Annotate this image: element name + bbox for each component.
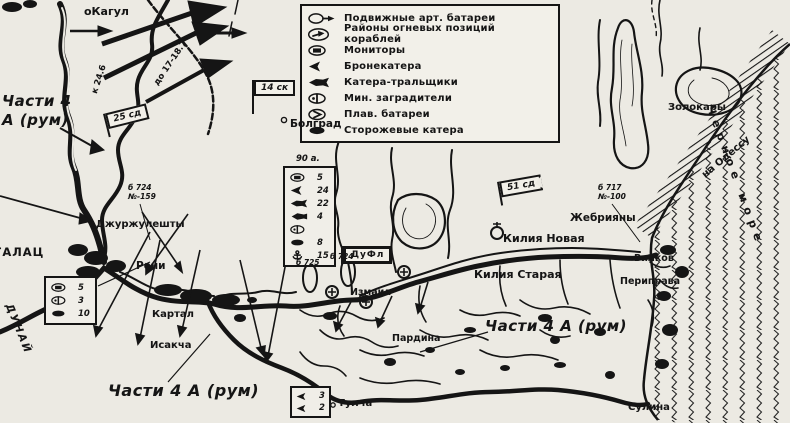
force-row: 3	[296, 390, 325, 402]
unit-4a-right: Части 4 А (рум)	[485, 317, 627, 335]
legend-label: Подвижные арт. батареи	[344, 13, 495, 24]
force-row	[290, 223, 329, 236]
place-tulcea: Тулча	[338, 398, 372, 409]
center-box-label: 90 а.	[296, 154, 320, 164]
force-count: 24	[317, 186, 329, 196]
legend-label: Плав. батареи	[344, 109, 430, 120]
force-count: 5	[78, 283, 84, 293]
place-reni: Рени	[136, 260, 165, 272]
battery-717-marker: б 717 №-100	[598, 184, 626, 201]
minelayer-icon	[290, 224, 312, 235]
legend-label: Бронекатера	[344, 61, 422, 72]
force-count: 3	[319, 391, 325, 401]
place-bolgrad: Болград	[290, 118, 341, 130]
minelayer-icon	[51, 295, 73, 306]
tulcea-town-ring	[331, 403, 335, 407]
force-row: 5	[51, 281, 90, 294]
battery-724b-marker: б 724	[330, 253, 354, 262]
legend-row: Мин. заградители	[308, 90, 552, 106]
force-count: 3	[78, 296, 84, 306]
legend-label: Мониторы	[344, 45, 405, 56]
force-count: 10	[78, 309, 90, 319]
legend-label: Сторожевые катера	[344, 125, 464, 136]
place-periprava: Периправа	[620, 276, 680, 287]
place-isakcha: Исакча	[150, 340, 191, 351]
place-vilkov: Вилков	[634, 253, 674, 264]
place-kartal: Картал	[152, 309, 194, 320]
armored-boat-icon	[290, 185, 312, 196]
force-count: 2	[319, 403, 325, 413]
monitor-icon	[51, 282, 73, 293]
battery-725-marker: б 725	[296, 259, 320, 268]
place-kagul: оКагул	[84, 5, 129, 18]
gunboat-icon	[290, 211, 312, 222]
legend-row: Районы огневых позиций кораблей	[308, 26, 552, 42]
legend-row: Катера-тральщики	[308, 74, 552, 90]
battery-724-marker: б 724 №-159	[128, 184, 156, 201]
bolgrad-town-ring	[281, 117, 286, 122]
force-count: 4	[317, 212, 323, 222]
force-row: 8	[290, 236, 329, 249]
historical-danube-map: Подвижные арт. батареи Районы огневых по…	[0, 0, 790, 423]
force-count: 8	[317, 238, 323, 248]
legend-label: Катера-тральщики	[344, 77, 458, 88]
minesweeper-boat-icon	[308, 76, 335, 89]
place-kiliya-staraya: Килия Старая	[474, 268, 562, 281]
patrol-boat-icon	[290, 237, 312, 248]
legend-label: Районы огневых позиций кораблей	[344, 23, 552, 45]
force-row: 10	[51, 307, 90, 320]
battery-index: №-100	[598, 193, 626, 202]
legend-row: Бронекатера	[308, 58, 552, 74]
force-row: 2	[296, 402, 325, 414]
place-dzhurzhuleshty: Джуржулешты	[96, 219, 185, 230]
place-izmail: Измаил	[350, 287, 391, 298]
armored-boat-icon	[296, 391, 314, 402]
monitor-icon	[308, 44, 335, 57]
legend-row: Сторожевые катера	[308, 122, 552, 138]
mobile-artillery-icon	[308, 12, 335, 25]
place-galats: ГАЛАЦ	[0, 245, 44, 259]
flag-14sk: 14 ск	[252, 80, 295, 114]
force-row: 3	[51, 294, 90, 307]
legend-row: Плав. батареи	[308, 106, 552, 122]
place-zhebriyany: Жебрияны	[570, 212, 636, 224]
ship-firing-areas-icon	[308, 28, 335, 41]
unit-4a-bottom: Части 4 А (рум)	[108, 381, 259, 400]
force-box-center: 5 24 22 4 8 15	[283, 166, 336, 267]
place-pardina: Пардина	[392, 333, 440, 344]
flag-cloth: 14 ск	[254, 80, 295, 96]
force-row: 4	[290, 210, 329, 223]
force-row: 24	[290, 184, 329, 197]
place-sulina: Сулина	[628, 402, 670, 413]
force-box-left: 5 3 10	[44, 276, 97, 325]
force-count: 5	[317, 173, 323, 183]
armored-boat-icon	[308, 60, 335, 73]
force-count: 22	[317, 199, 329, 209]
firing-area-oval	[303, 264, 317, 292]
unit-4a-left: Части 4 А (рум)	[2, 92, 72, 130]
legend-label: Мин. заградители	[344, 93, 452, 104]
force-row: 22	[290, 197, 329, 210]
force-box-tulcea: 3 2	[290, 386, 331, 418]
battery-index: №-159	[128, 193, 156, 202]
minesweeper-boat-icon	[290, 198, 312, 209]
monitor-icon	[290, 172, 312, 183]
force-row: 5	[290, 171, 329, 184]
minelayer-icon	[308, 92, 335, 105]
patrol-boat-icon	[51, 308, 73, 319]
armored-boat-icon	[296, 403, 314, 414]
place-kiliya-novaya: Килия Новая	[503, 232, 585, 245]
